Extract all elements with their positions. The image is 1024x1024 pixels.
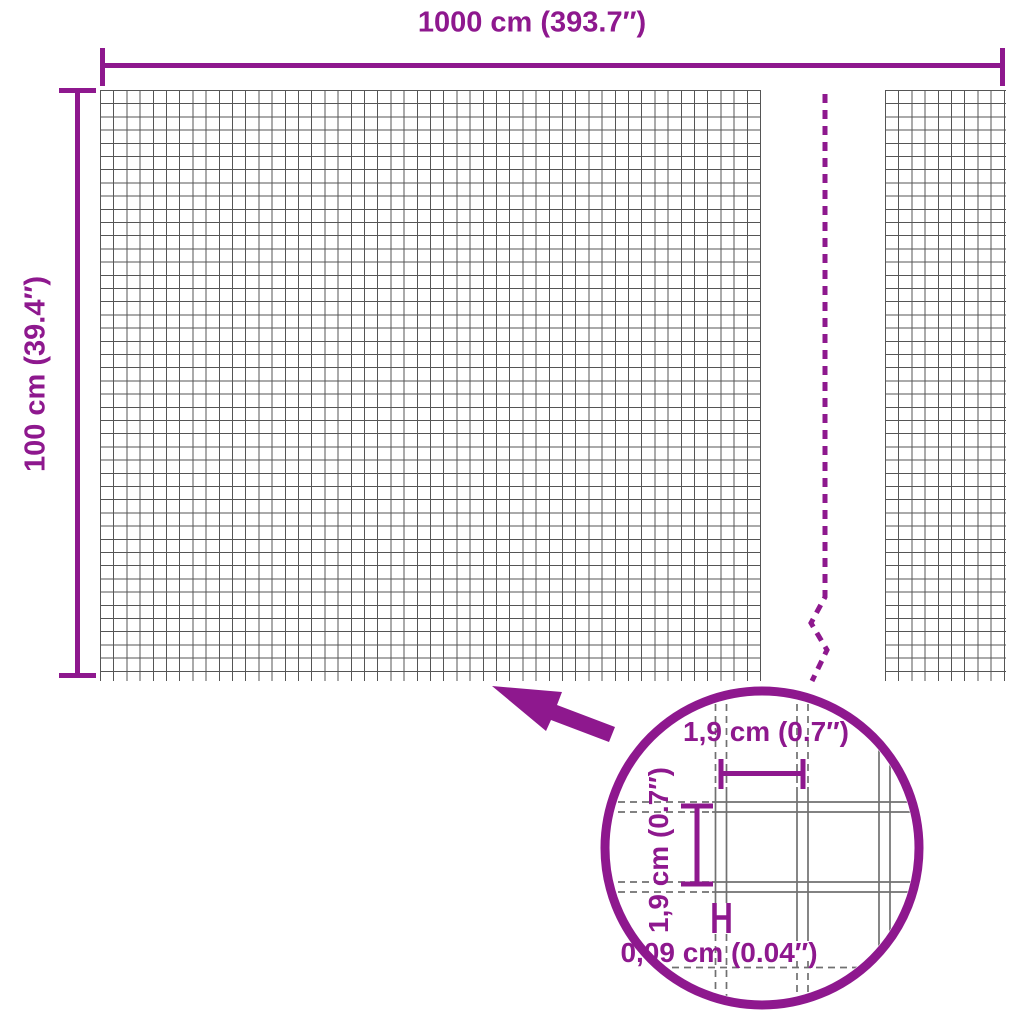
zoom-arrow-icon bbox=[492, 686, 615, 742]
break-line bbox=[811, 94, 827, 681]
product-dimension-diagram: 1000 cm (393.7″) 100 cm (39.4″) bbox=[0, 0, 1024, 1024]
detail-cell-height-label: 1,9 cm (0.7″) bbox=[645, 767, 673, 933]
detail-wire-thickness-label: 0,09 cm (0.04″) bbox=[620, 939, 817, 967]
detail-cell-width-label: 1,9 cm (0.7″) bbox=[683, 718, 849, 746]
diagram-graphics bbox=[0, 0, 1024, 1024]
